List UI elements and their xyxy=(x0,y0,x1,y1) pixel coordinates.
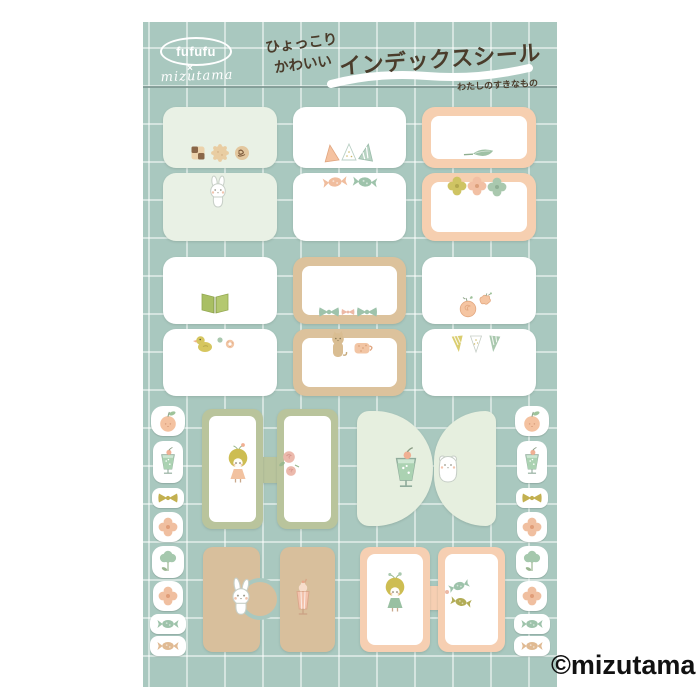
tab-bump xyxy=(243,582,277,616)
mini-sticker-flower xyxy=(153,512,183,542)
mini-sticker-soda xyxy=(153,441,183,483)
mini-sticker-flower xyxy=(153,581,183,611)
index-tab xyxy=(434,411,496,526)
mini-sticker-apple xyxy=(515,406,549,436)
product-page: { "page": { "bg": "#ffffff", "copyright"… xyxy=(0,0,700,700)
index-tab xyxy=(360,547,430,652)
mini-sticker-candy xyxy=(514,614,550,634)
index-tab xyxy=(438,547,505,652)
mini-sticker-tulip xyxy=(516,546,548,578)
index-tab xyxy=(280,547,335,652)
card-inner-panel xyxy=(431,116,527,159)
mini-sticker-flower xyxy=(517,581,547,611)
mini-sticker-soda xyxy=(517,441,547,483)
product-subtitle: わたしのすきなもの xyxy=(457,76,539,93)
mini-sticker-bow xyxy=(152,488,184,508)
mini-sticker-bow xyxy=(516,488,548,508)
index-sticker-card xyxy=(293,257,406,324)
index-sticker-card xyxy=(163,173,277,241)
index-tab xyxy=(277,409,338,529)
card-inner-panel xyxy=(302,338,397,387)
tab-inner-panel xyxy=(367,554,423,645)
card-inner-panel xyxy=(302,266,397,315)
index-sticker-card xyxy=(293,107,406,168)
index-sticker-card xyxy=(422,107,536,168)
mini-sticker-tulip xyxy=(152,546,184,578)
mini-sticker-apple xyxy=(151,406,185,436)
index-sticker-card xyxy=(422,173,536,241)
index-sticker-card xyxy=(422,329,536,396)
mizutama-logo: mizutama xyxy=(147,67,247,85)
index-sticker-card xyxy=(163,329,277,396)
index-sticker-card xyxy=(163,257,277,324)
mini-sticker-candy xyxy=(150,636,186,656)
index-sticker-card xyxy=(422,257,536,324)
index-sticker-card xyxy=(293,173,406,241)
fufufu-logo: fufufu xyxy=(160,37,232,66)
mini-sticker-candy xyxy=(150,614,186,634)
tab-inner-panel xyxy=(445,554,498,645)
copyright-text: ©mizutama xyxy=(551,650,695,681)
tab-inner-panel xyxy=(209,416,256,522)
mini-sticker-flower xyxy=(517,512,547,542)
brand-text: fufufu xyxy=(176,44,216,59)
index-tab xyxy=(357,411,433,526)
index-tab xyxy=(202,409,263,529)
mini-sticker-candy xyxy=(514,636,550,656)
card-inner-panel xyxy=(431,182,527,232)
sticker-sheet: fufufu × mizutama ひょっこり かわいい インデックスシール わ… xyxy=(143,22,557,687)
tab-inner-panel xyxy=(284,416,331,522)
index-sticker-card xyxy=(163,107,277,168)
index-sticker-card xyxy=(293,329,406,396)
